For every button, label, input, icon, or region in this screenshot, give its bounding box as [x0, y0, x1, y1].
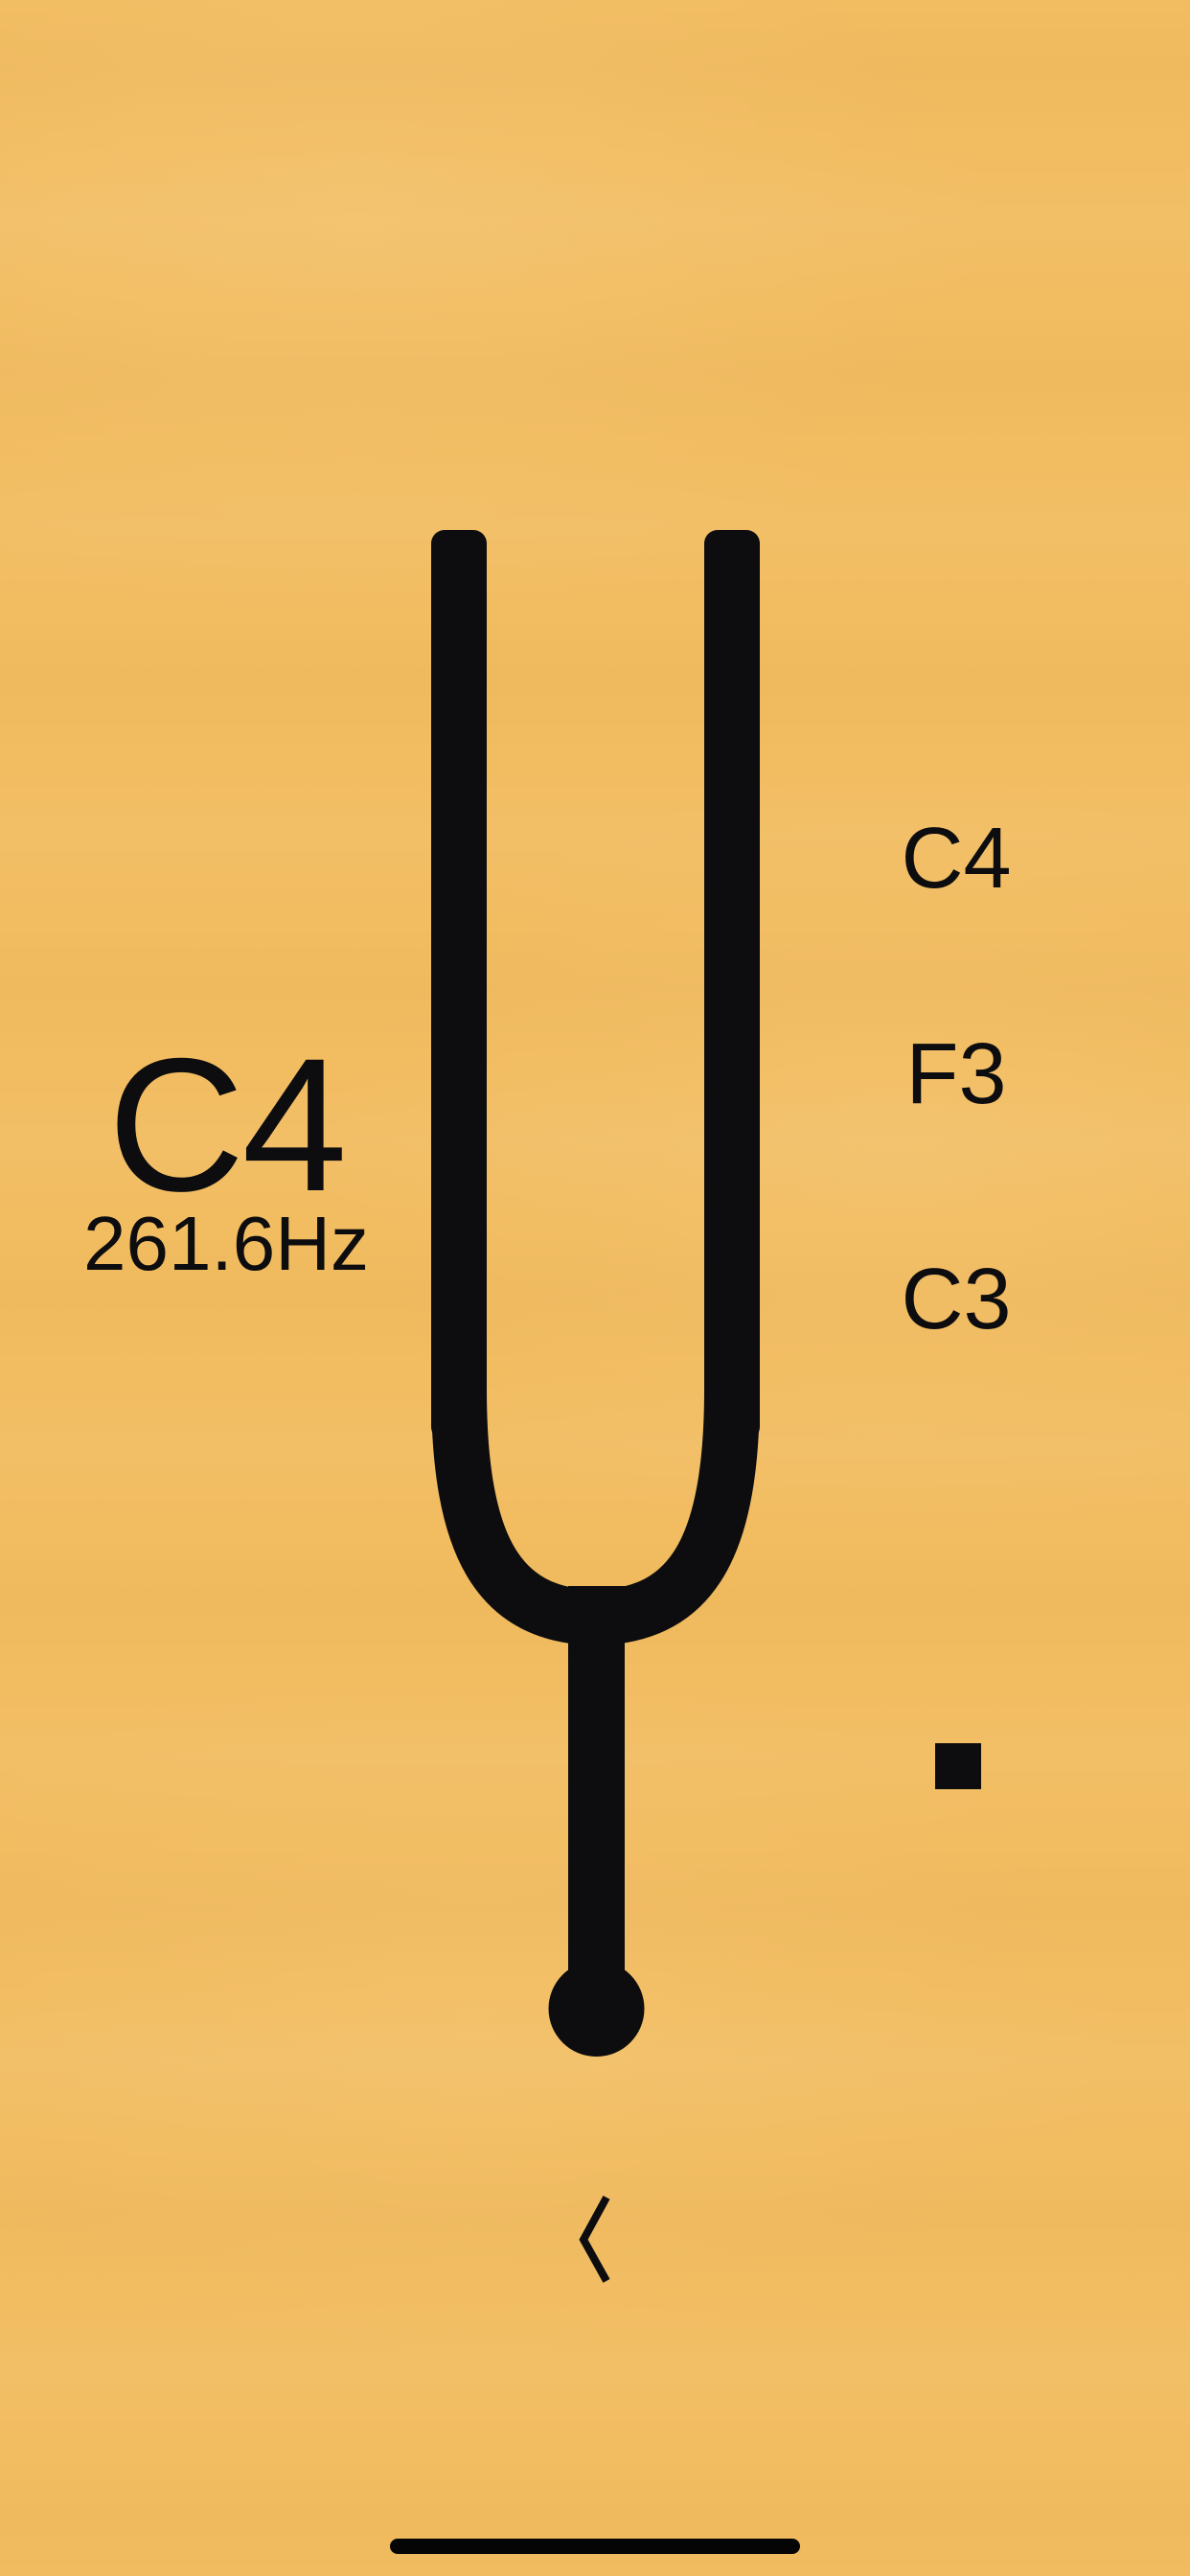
tuning-fork-icon[interactable]: [431, 530, 760, 2057]
note-option-c3[interactable]: C3: [812, 1256, 1100, 1343]
fork-stem: [568, 1586, 625, 2010]
note-option-c4[interactable]: C4: [812, 816, 1100, 902]
fork-ball: [549, 1961, 645, 2057]
fork-right-prong: [704, 530, 760, 1440]
chevron-left-stroke: [584, 2197, 606, 2281]
chevron-left-icon[interactable]: [584, 2197, 606, 2281]
fork-bend: [459, 1390, 732, 1618]
stop-icon[interactable]: [935, 1743, 981, 1789]
note-option-f3[interactable]: F3: [812, 1031, 1100, 1117]
fork-left-prong: [431, 530, 487, 1440]
home-indicator[interactable]: [390, 2539, 800, 2554]
